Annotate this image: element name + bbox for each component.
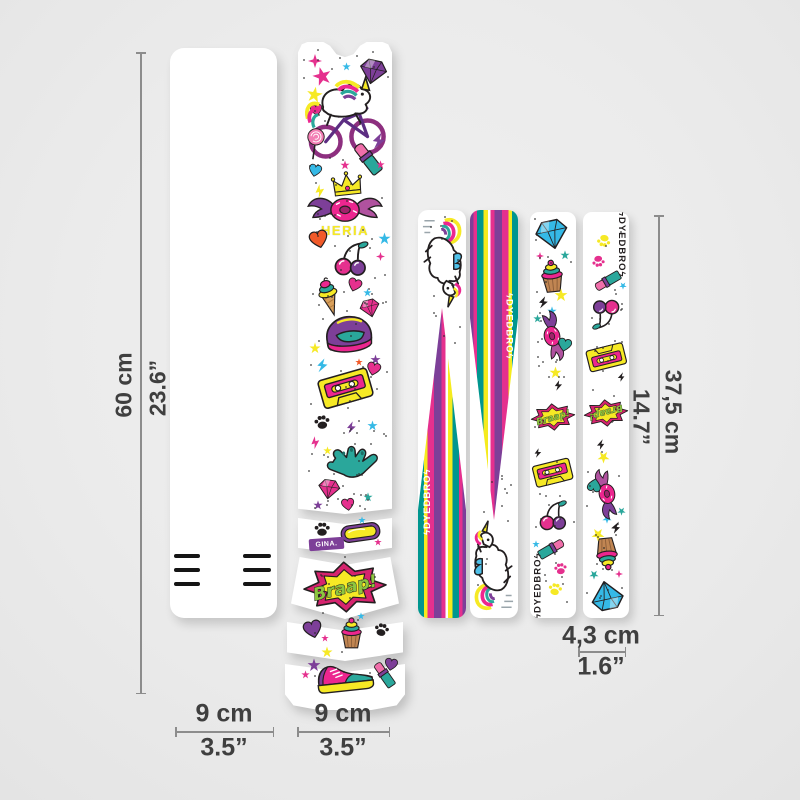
confetti-dot [312, 293, 314, 295]
confetti-dot [344, 556, 346, 558]
confetti-dot [365, 494, 367, 496]
dimension-label-right-imperial: 14.7” [628, 389, 655, 445]
confetti-dot [372, 51, 374, 53]
confetti-dot [343, 291, 345, 293]
confetti-dot [602, 370, 604, 372]
wingdonut-icon [536, 308, 570, 364]
confetti-dot [310, 403, 312, 405]
confetti-dot [320, 424, 322, 426]
fork-protector-left: ϟDYEDBROϟ [418, 210, 466, 618]
confetti-dot [602, 347, 604, 349]
stay-protector-right: ϟDYEDBROϟ [583, 212, 629, 618]
confetti-dot [535, 526, 537, 528]
star-icon [340, 160, 350, 170]
star-icon [597, 451, 610, 464]
confetti-dot [359, 123, 361, 125]
star-icon [321, 646, 333, 658]
confetti-dot [386, 371, 388, 373]
frame-protection-dimensions-image: HERIAGINA. ϟDYEDBROϟ ϟDYEDBROϟ ϟDYEDBROϟ… [0, 0, 800, 800]
stay-protector-artwork: ϟDYEDBROϟ [530, 212, 576, 618]
bolt-icon [314, 357, 331, 374]
paw-icon [590, 253, 607, 269]
confetti-dot [544, 473, 546, 475]
paw-icon [312, 413, 332, 432]
wingdonut-icon [307, 192, 383, 225]
dimension-line-front-width [175, 731, 274, 733]
vent-line [174, 568, 200, 572]
confetti-dot [548, 504, 550, 506]
confetti-dot [385, 435, 387, 437]
confetti-dot [366, 303, 368, 305]
dimension-line-frame-width [297, 731, 390, 733]
confetti-dot [303, 59, 305, 61]
dimension-label-left-imperial: 23.6” [145, 360, 172, 416]
confetti-dot [324, 215, 326, 217]
bolt-icon [595, 439, 606, 450]
confetti-dot [451, 220, 453, 222]
confetti-dot [339, 57, 341, 59]
confetti-dot [433, 295, 435, 297]
paw-icon [313, 521, 331, 538]
confetti-dot [451, 284, 453, 286]
confetti-dot [444, 216, 446, 218]
confetti-dot [317, 49, 319, 51]
confetti-dot [538, 365, 540, 367]
confetti-dot [371, 293, 373, 295]
confetti-dot [384, 274, 386, 276]
confetti-dot [346, 310, 348, 312]
confetti-dot [343, 432, 345, 434]
confetti-dot [308, 470, 310, 472]
vent-line [243, 582, 271, 586]
confetti-dot [323, 454, 325, 456]
fork-protector-right: ϟDYEDBROϟ [470, 210, 518, 618]
confetti-dot [589, 485, 591, 487]
confetti-dot [453, 284, 455, 286]
confetti-dot [317, 59, 319, 61]
star-icon [549, 366, 562, 379]
confetti-dot [539, 493, 541, 495]
bolt-icon [616, 372, 626, 382]
heart-icon [556, 337, 574, 355]
stay-protector-artwork: ϟDYEDBROϟ [583, 212, 629, 618]
confetti-dot [358, 420, 360, 422]
confetti-dot [600, 595, 602, 597]
confetti-dot [341, 651, 343, 653]
confetti-dot [326, 504, 328, 506]
confetti-dot [322, 318, 324, 320]
cupcake-icon [333, 614, 370, 650]
confetti-dot [607, 360, 609, 362]
confetti-dot [342, 159, 344, 161]
star-icon [554, 288, 568, 302]
confetti-dot [537, 341, 539, 343]
dimension-label-stay-metric: 4,3 cm [562, 622, 640, 651]
brand-logo: ϟDYEDBROϟ [502, 286, 515, 366]
confetti-dot [566, 601, 568, 603]
confetti-dot [538, 473, 540, 475]
confetti-dot [540, 518, 542, 520]
heart-icon [383, 657, 399, 673]
brand-logo: ϟDYEDBROϟ [421, 462, 434, 542]
confetti-dot [601, 279, 603, 281]
confetti-dot [594, 350, 596, 352]
confetti-dot [586, 505, 588, 507]
confetti-dot [350, 335, 352, 337]
confetti-dot [545, 495, 547, 497]
bolt-icon [533, 448, 543, 458]
confetti-dot [501, 475, 503, 477]
confetti-dot [592, 389, 594, 391]
confetti-dot [385, 301, 387, 303]
confetti-dot [537, 356, 539, 358]
cherries-icon [587, 297, 625, 331]
confetti-dot [349, 597, 351, 599]
dimension-label-front-metric: 9 cm [196, 700, 253, 729]
unicorn-icon [472, 514, 516, 614]
confetti-dot [563, 376, 565, 378]
confetti-dot [613, 395, 615, 397]
confetti-dot [316, 231, 318, 233]
confetti-dot [615, 534, 617, 536]
dimension-label-left-metric: 60 cm [111, 352, 138, 417]
confetti-dot [310, 364, 312, 366]
frame-protector-artwork: HERIAGINA. [298, 42, 392, 694]
confetti-dot [356, 432, 358, 434]
confetti-dot [598, 408, 600, 410]
confetti-dot [340, 594, 342, 596]
confetti-dot [382, 302, 384, 304]
star-icon [321, 634, 329, 642]
confetti-dot [374, 277, 376, 279]
vent-line [174, 554, 200, 558]
confetti-dot [361, 474, 363, 476]
confetti-dot [358, 460, 360, 462]
confetti-dot [362, 229, 364, 231]
gem-icon [586, 577, 628, 616]
paw-icon [372, 620, 392, 639]
confetti-dot [615, 293, 617, 295]
star-icon [591, 528, 605, 542]
star-icon [376, 160, 385, 169]
confetti-dot [617, 523, 619, 525]
fork-artwork: ϟDYEDBROϟ [470, 210, 518, 618]
confetti-dot [620, 231, 622, 233]
confetti-dot [309, 165, 311, 167]
brand-logo: ϟDYEDBROϟ [615, 218, 627, 270]
dimension-label-frame-metric: 9 cm [315, 700, 372, 729]
cassette-icon [530, 454, 576, 495]
dimension-label-front-imperial: 3.5” [200, 734, 247, 763]
confetti-dot [435, 315, 437, 317]
vent-line [243, 568, 271, 572]
confetti-dot [542, 361, 544, 363]
vent-line [243, 554, 271, 558]
unicorn-icon [420, 214, 464, 314]
confetti-dot [350, 385, 352, 387]
confetti-dot [373, 430, 375, 432]
braap-icon [583, 390, 629, 437]
confetti-dot [368, 288, 370, 290]
confetti-dot [364, 508, 366, 510]
dimension-label-right-metric: 37,5 cm [660, 370, 687, 454]
confetti-dot [317, 213, 319, 215]
dimension-label-frame-imperial: 3.5” [319, 734, 366, 763]
decorated-frame-protector: HERIAGINA. [298, 42, 392, 694]
confetti-dot [357, 619, 359, 621]
sneaker-icon [311, 655, 378, 697]
confetti-dot [314, 110, 316, 112]
paw-icon [595, 232, 613, 250]
confetti-dot [369, 247, 371, 249]
sparkle-icon [376, 252, 385, 261]
confetti-dot [547, 256, 549, 258]
confetti-dot [559, 495, 561, 497]
bolt-icon [553, 380, 564, 391]
star-icon [378, 232, 391, 245]
confetti-dot [534, 218, 536, 220]
confetti-dot [561, 576, 563, 578]
star-icon [301, 670, 310, 679]
confetti-dot [504, 488, 506, 490]
brand-logo: ϟDYEDBROϟ [532, 560, 544, 612]
confetti-dot [333, 473, 335, 475]
confetti-dot [328, 583, 330, 585]
confetti-dot [303, 77, 305, 79]
star-icon [342, 62, 351, 71]
heart-icon [340, 497, 356, 513]
confetti-dot [507, 520, 509, 522]
confetti-dot [319, 218, 321, 220]
confetti-dot [587, 471, 589, 473]
confetti-dot [356, 55, 358, 57]
confetti-dot [381, 197, 383, 199]
confetti-dot [359, 505, 361, 507]
star-icon [374, 538, 382, 546]
dimension-line-left-height [140, 52, 142, 694]
blank-protector-strip [170, 48, 277, 618]
confetti-dot [339, 345, 341, 347]
braap-icon [530, 394, 576, 441]
confetti-dot [353, 493, 355, 495]
confetti-dot [539, 312, 541, 314]
confetti-dot [602, 568, 604, 570]
fork-artwork: ϟDYEDBROϟ [418, 210, 466, 618]
confetti-dot [376, 388, 378, 390]
confetti-dot [540, 320, 542, 322]
confetti-dot [491, 481, 493, 483]
star-icon [309, 342, 321, 354]
braap-icon [300, 558, 391, 617]
confetti-dot [545, 580, 547, 582]
stay-protector-left: ϟDYEDBROϟ [530, 212, 576, 618]
confetti-dot [621, 308, 623, 310]
confetti-dot [334, 245, 336, 247]
confetti-dot [544, 574, 546, 576]
artwork-badge-text: GINA. [309, 537, 345, 551]
confetti-dot [556, 461, 558, 463]
confetti-dot [351, 504, 353, 506]
confetti-dot [349, 430, 351, 432]
dimension-label-stay-imperial: 1.6” [577, 653, 624, 682]
confetti-dot [311, 453, 313, 455]
confetti-dot [603, 547, 605, 549]
confetti-dot [387, 76, 389, 78]
cherries-icon [534, 499, 572, 533]
confetti-dot [573, 521, 575, 523]
confetti-dot [596, 563, 598, 565]
confetti-dot [340, 269, 342, 271]
vent-line [174, 582, 200, 586]
confetti-dot [618, 475, 620, 477]
confetti-dot [550, 262, 552, 264]
